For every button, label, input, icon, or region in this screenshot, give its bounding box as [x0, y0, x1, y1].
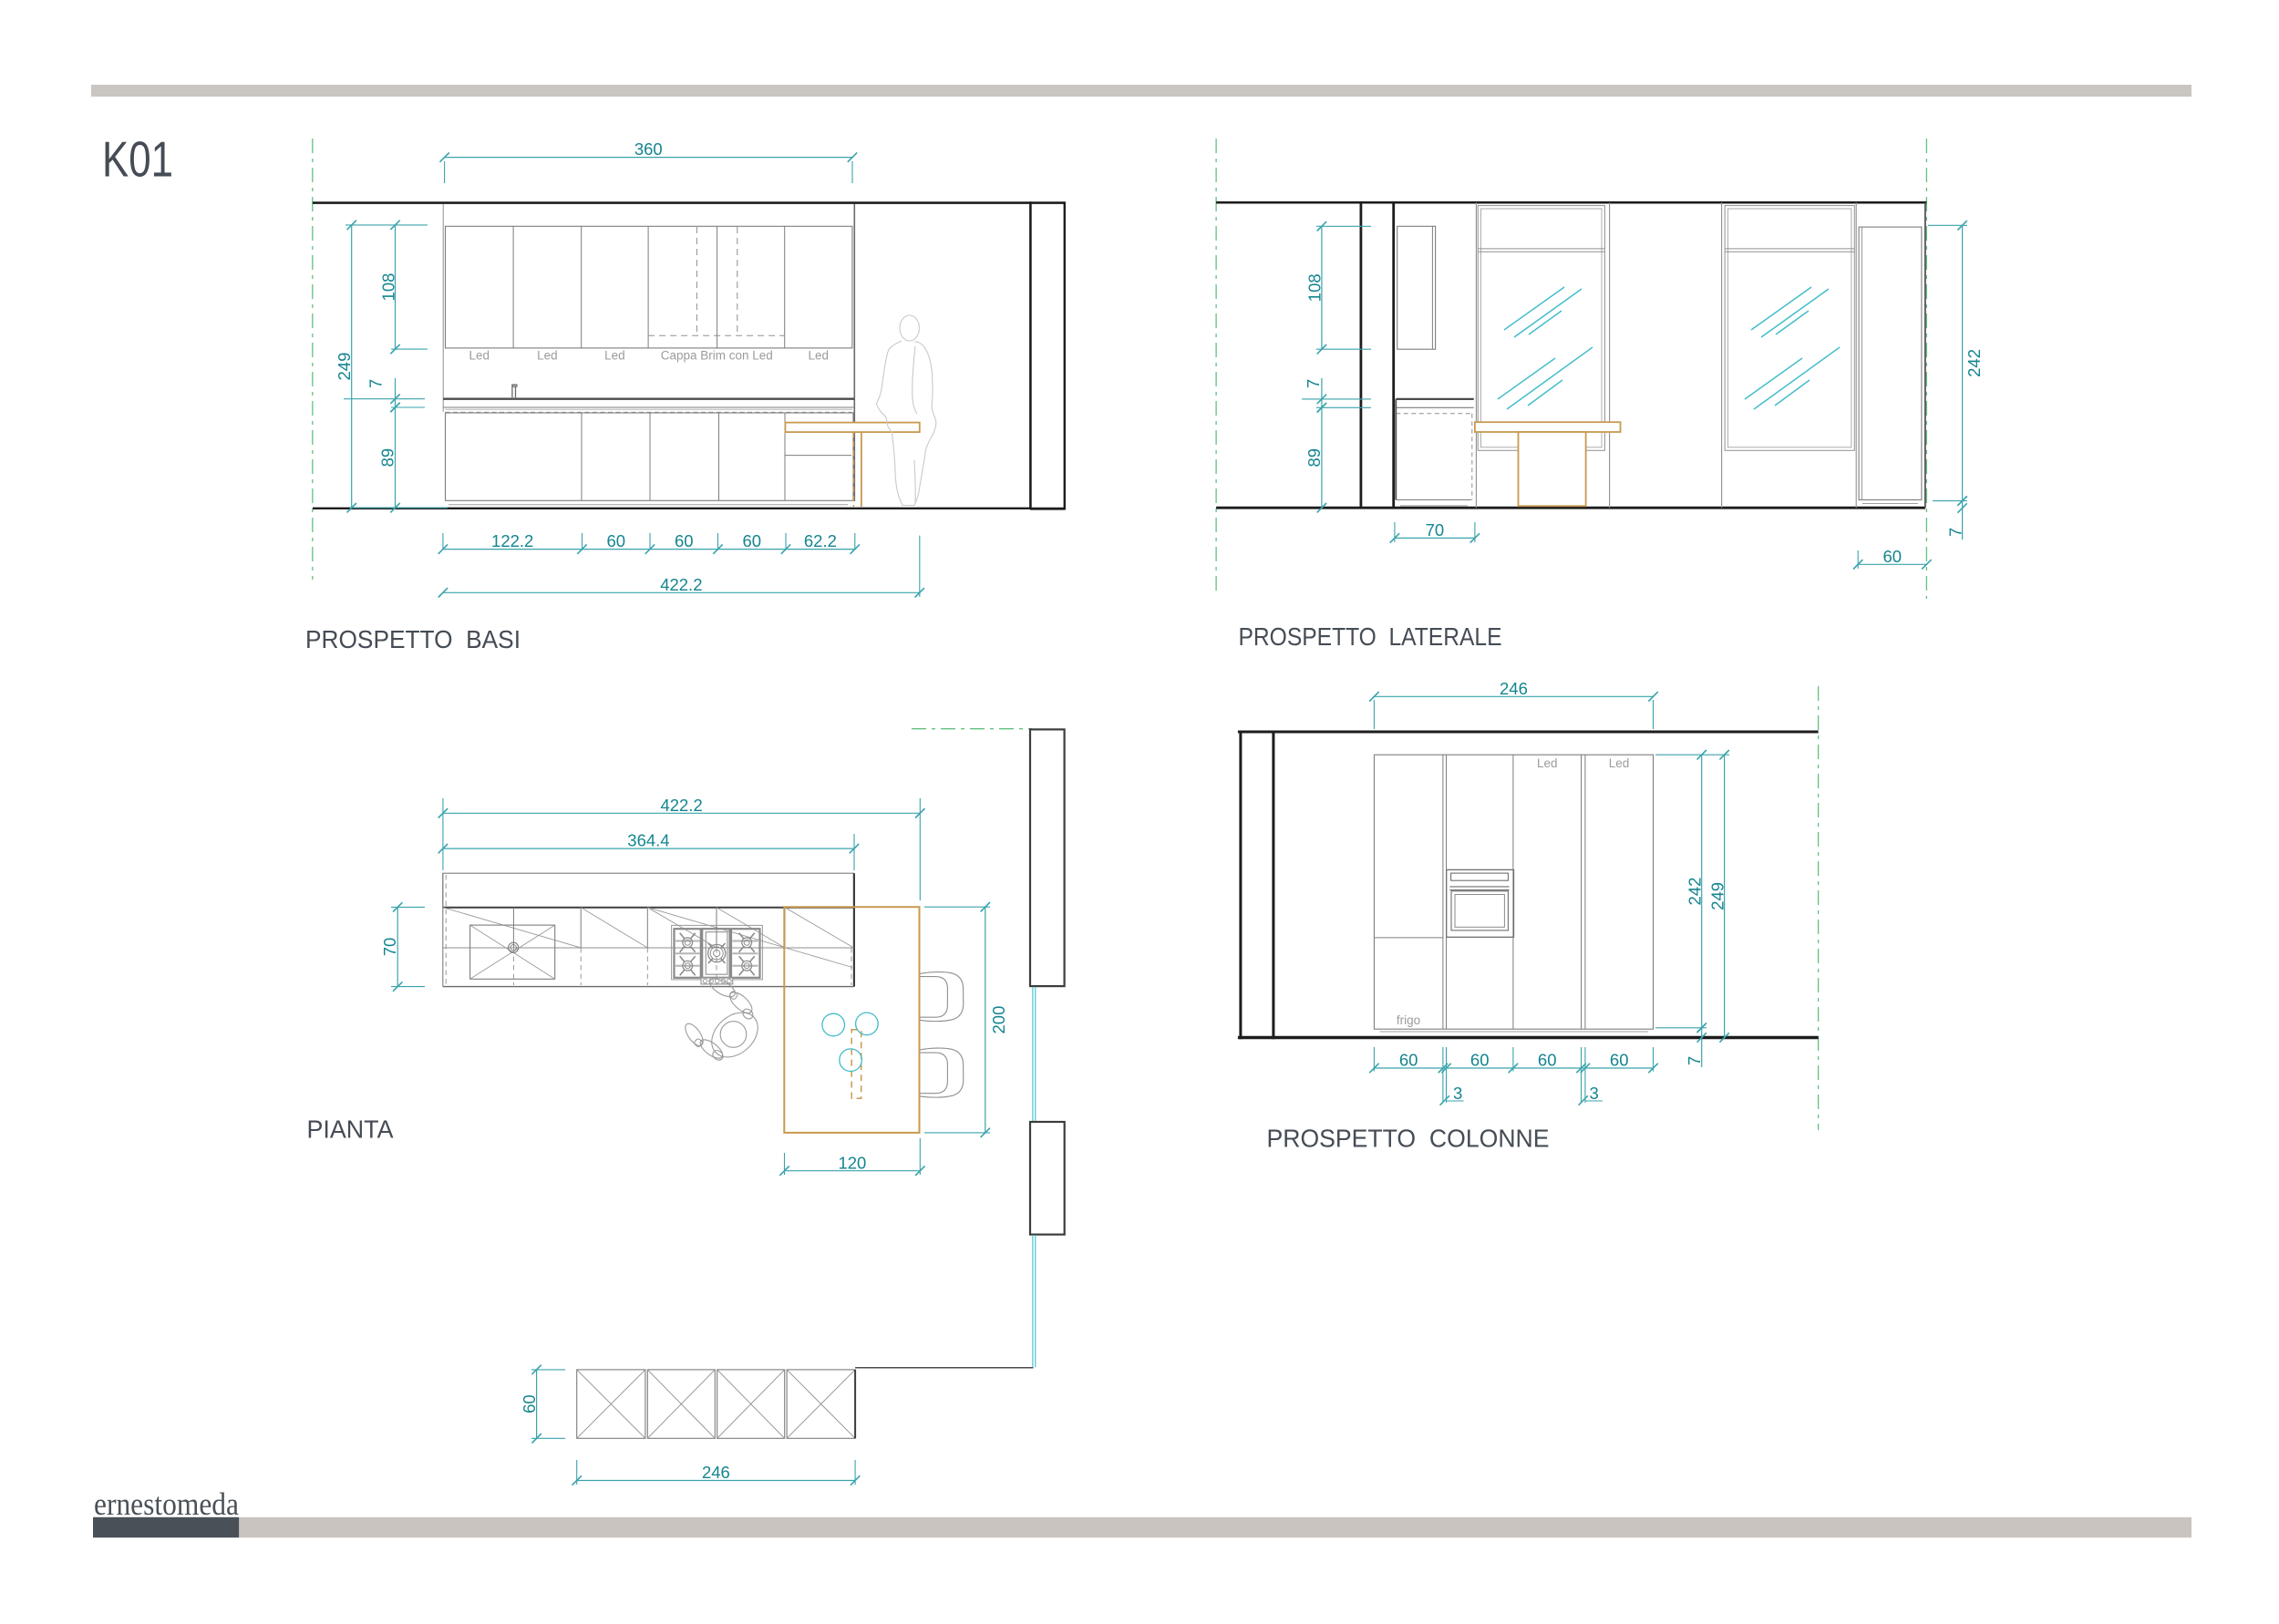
svg-text:60: 60	[606, 531, 625, 550]
svg-text:frigo: frigo	[1397, 1013, 1420, 1027]
svg-text:70: 70	[1426, 520, 1445, 540]
svg-text:249: 249	[1708, 882, 1727, 910]
svg-text:3: 3	[1453, 1084, 1462, 1103]
svg-text:Led: Led	[809, 349, 830, 363]
svg-text:249: 249	[335, 353, 354, 381]
svg-text:70: 70	[380, 938, 399, 957]
svg-text:7: 7	[1685, 1056, 1704, 1065]
svg-text:242: 242	[1686, 878, 1705, 906]
svg-text:Led: Led	[1537, 756, 1558, 770]
svg-text:364.4: 364.4	[627, 831, 669, 850]
svg-text:60: 60	[1470, 1051, 1490, 1070]
svg-text:242: 242	[1964, 349, 1984, 377]
svg-text:60: 60	[1883, 547, 1903, 566]
svg-text:PROSPETTO BASI: PROSPETTO BASI	[305, 625, 521, 653]
svg-text:422.2: 422.2	[660, 796, 702, 815]
svg-text:Led: Led	[469, 349, 490, 363]
svg-text:3: 3	[1590, 1084, 1599, 1103]
svg-text:60: 60	[1399, 1051, 1418, 1070]
svg-text:PROSPETTO COLONNE: PROSPETTO COLONNE	[1267, 1125, 1550, 1153]
svg-text:7: 7	[366, 379, 386, 388]
svg-text:89: 89	[378, 448, 397, 468]
svg-text:ernestomeda: ernestomeda	[94, 1487, 239, 1522]
svg-text:122.2: 122.2	[491, 531, 533, 550]
svg-text:K01: K01	[102, 131, 173, 188]
svg-text:PROSPETTO LATERALE: PROSPETTO LATERALE	[1239, 622, 1502, 651]
svg-text:60: 60	[742, 531, 761, 550]
svg-text:7: 7	[1946, 528, 1965, 537]
svg-text:Cappa Brim con Led: Cappa Brim con Led	[661, 349, 773, 363]
svg-text:200: 200	[989, 1006, 1008, 1034]
svg-text:89: 89	[1304, 448, 1324, 468]
svg-text:422.2: 422.2	[660, 575, 702, 594]
svg-text:Led: Led	[537, 349, 558, 363]
svg-text:PIANTA: PIANTA	[307, 1115, 394, 1144]
svg-text:60: 60	[520, 1394, 539, 1413]
svg-text:Led: Led	[604, 349, 625, 363]
svg-text:246: 246	[702, 1463, 730, 1482]
svg-text:108: 108	[379, 273, 398, 302]
svg-text:246: 246	[1500, 679, 1528, 698]
svg-text:60: 60	[675, 531, 694, 550]
svg-text:360: 360	[634, 139, 663, 159]
svg-text:Led: Led	[1609, 756, 1630, 770]
svg-text:120: 120	[838, 1153, 866, 1172]
svg-text:108: 108	[1305, 273, 1325, 302]
svg-text:60: 60	[1610, 1051, 1629, 1070]
svg-text:62.2: 62.2	[804, 531, 837, 550]
svg-text:60: 60	[1538, 1051, 1557, 1070]
svg-text:7: 7	[1304, 379, 1323, 388]
